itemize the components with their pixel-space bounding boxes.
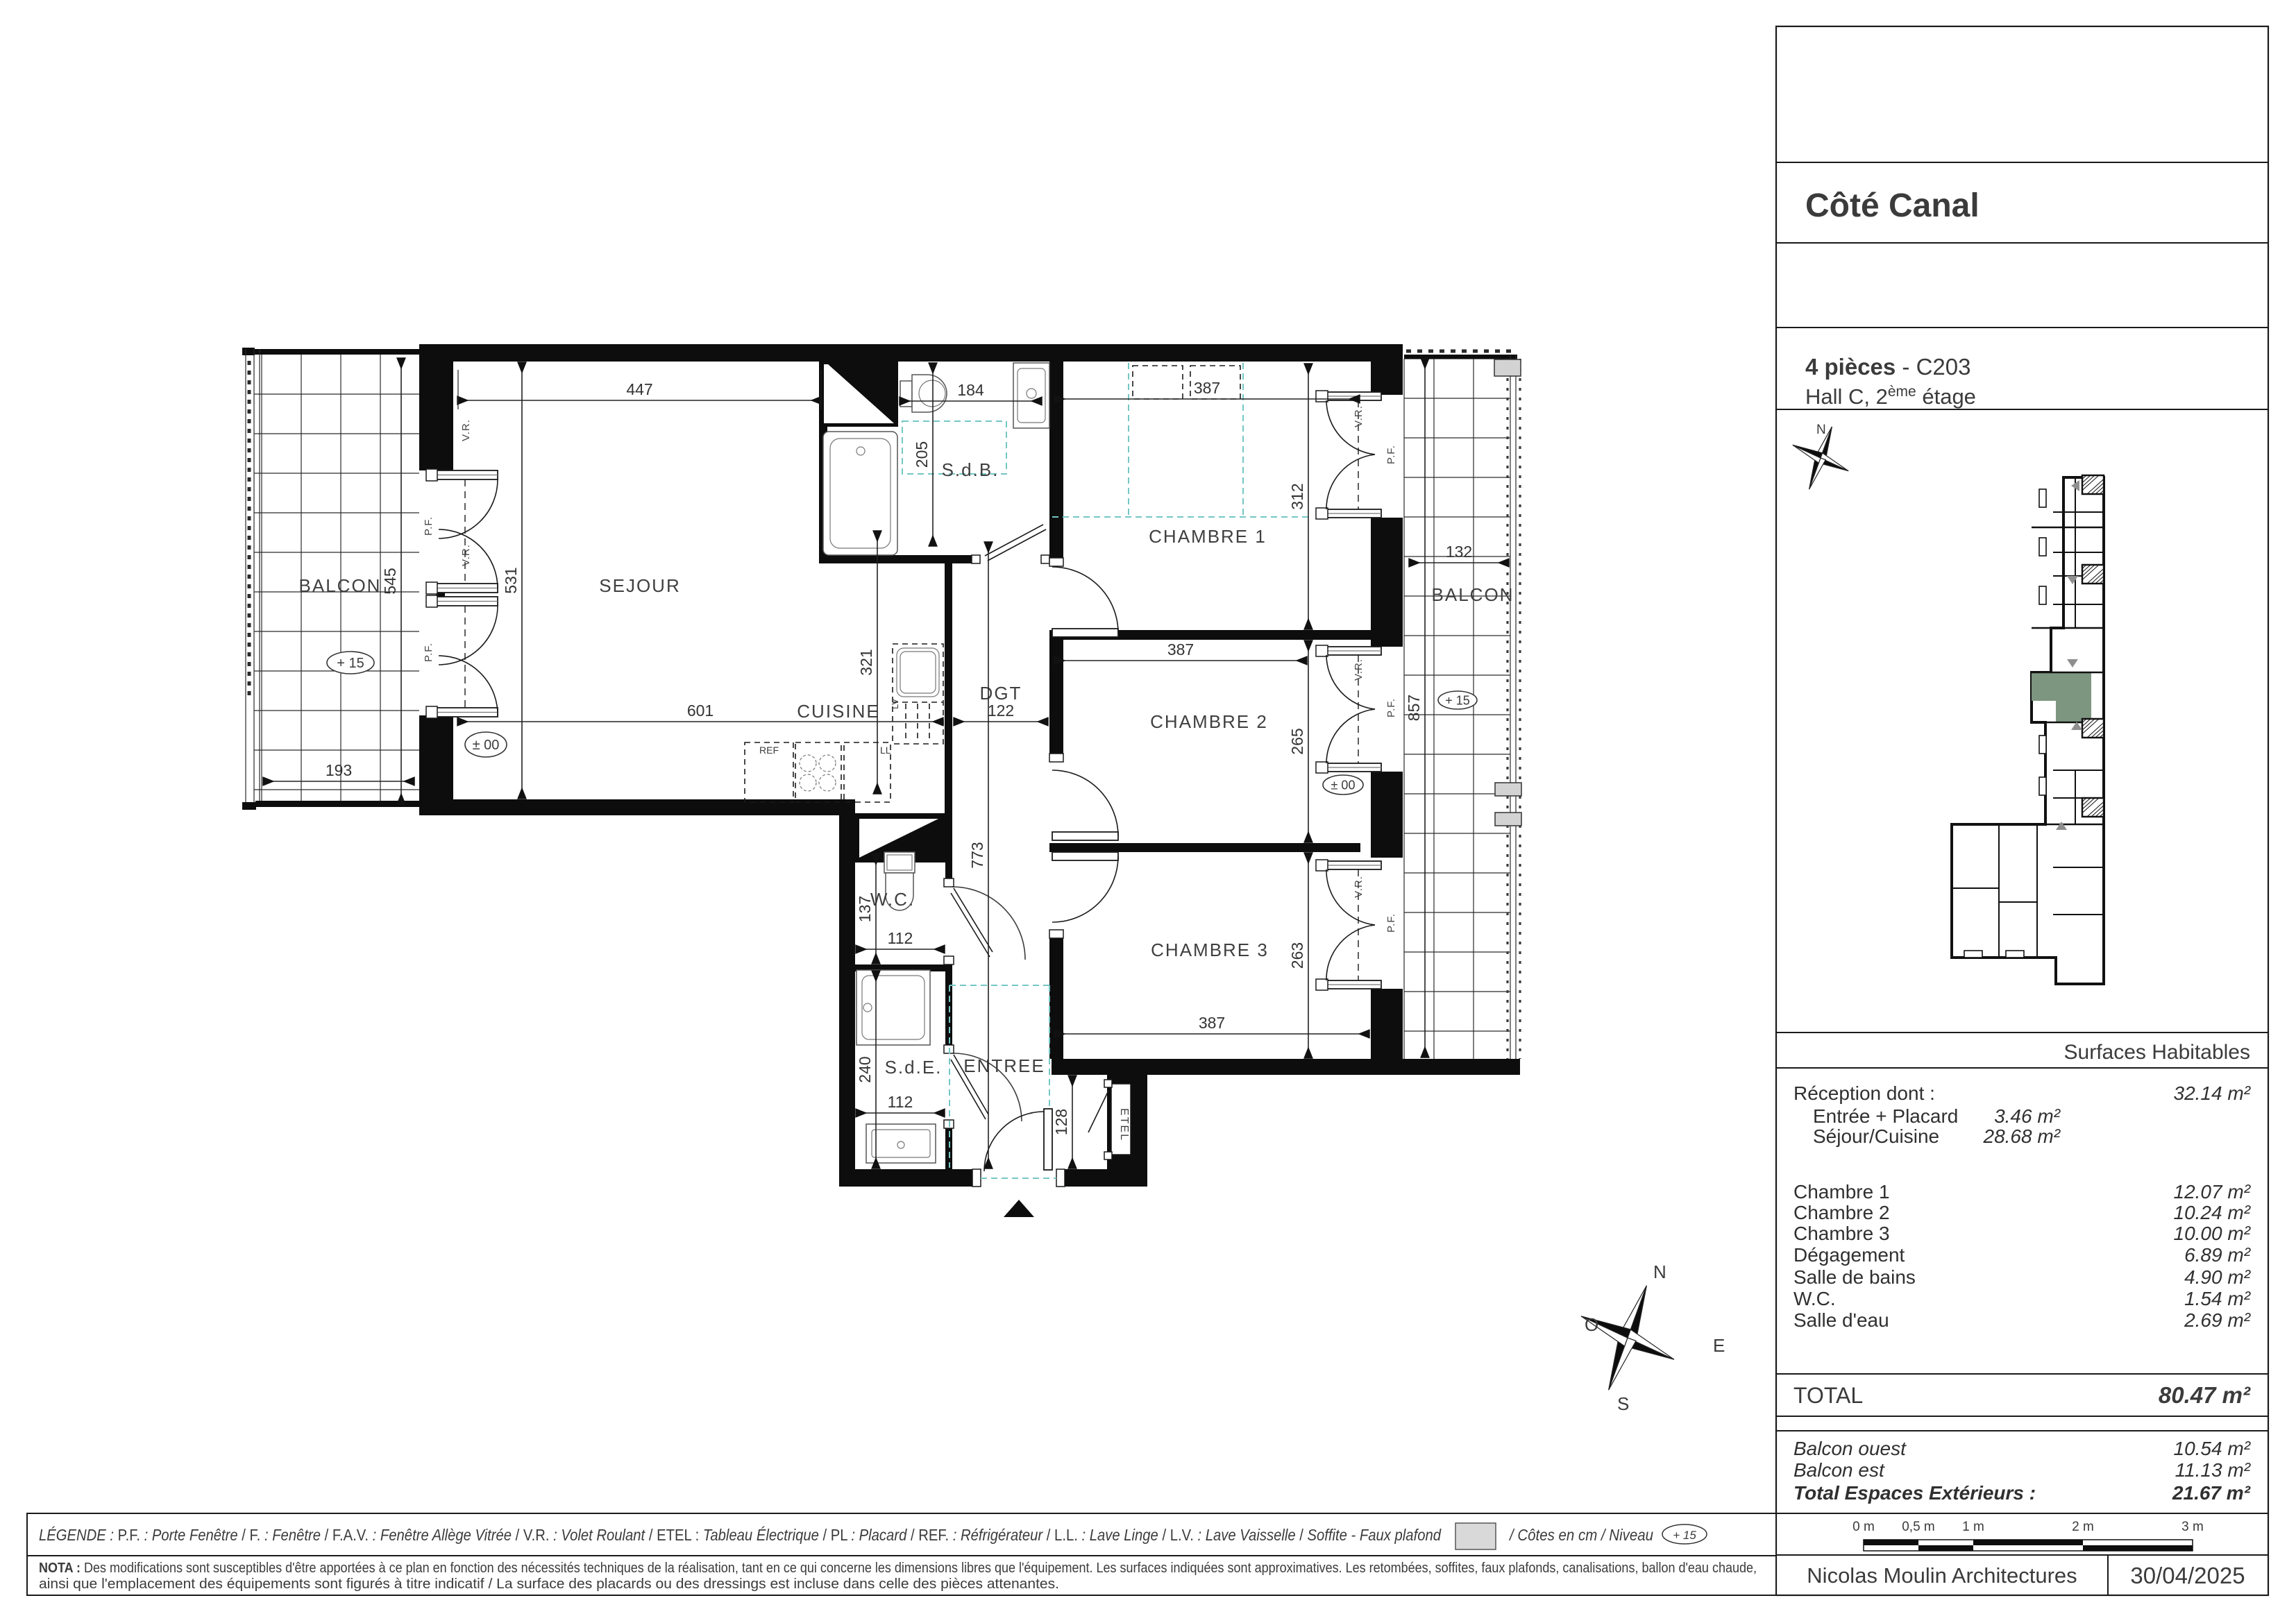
svg-text:CHAMBRE 3: CHAMBRE 3 [1151, 940, 1269, 960]
svg-text:NOTA : Des modifications sont: NOTA : Des modifications sont susceptibl… [39, 1560, 1757, 1576]
svg-text:N: N [1653, 1261, 1666, 1282]
svg-text:128: 128 [1052, 1109, 1070, 1135]
svg-text:184: 184 [957, 381, 984, 399]
svg-text:Réception dont :: Réception dont : [1793, 1082, 1935, 1104]
svg-text:132: 132 [1446, 543, 1472, 561]
svg-text:312: 312 [1288, 483, 1306, 509]
svg-text:Séjour/Cuisine: Séjour/Cuisine [1813, 1125, 1939, 1147]
svg-text:± 00: ± 00 [1331, 778, 1356, 792]
svg-text:1.54 m²: 1.54 m² [2184, 1288, 2252, 1309]
svg-text:Chambre 2: Chambre 2 [1793, 1202, 1890, 1223]
svg-text:531: 531 [502, 567, 520, 593]
svg-text:193: 193 [326, 761, 352, 779]
svg-text:447: 447 [626, 380, 652, 398]
svg-text:Balcon ouest: Balcon ouest [1793, 1438, 1907, 1459]
svg-text:Total Espaces Extérieurs :: Total Espaces Extérieurs : [1793, 1482, 2036, 1504]
svg-text:BALCON: BALCON [299, 575, 382, 596]
svg-text:32.14 m²: 32.14 m² [2174, 1082, 2252, 1104]
svg-text:W.C.: W.C. [1793, 1288, 1836, 1309]
svg-text:CHAMBRE 2: CHAMBRE 2 [1150, 711, 1268, 732]
svg-text:Salle de bains: Salle de bains [1793, 1266, 1916, 1288]
svg-text:ETEL: ETEL [1118, 1108, 1130, 1141]
svg-text:REF: REF [759, 745, 779, 756]
svg-text:SEJOUR: SEJOUR [599, 575, 680, 596]
svg-text:0,5 m: 0,5 m [1902, 1520, 1935, 1534]
svg-text:V.R.: V.R. [1353, 405, 1365, 427]
svg-text:CHAMBRE 1: CHAMBRE 1 [1149, 526, 1267, 547]
svg-text:112: 112 [888, 1093, 913, 1111]
svg-text:387: 387 [1199, 1014, 1225, 1032]
svg-text:Dégagement: Dégagement [1793, 1244, 1905, 1266]
svg-text:ainsi que l'emplacement des éq: ainsi que l'emplacement des équipements … [39, 1576, 1059, 1592]
svg-text:DGT: DGT [980, 683, 1022, 704]
svg-text:2 m: 2 m [2072, 1520, 2094, 1534]
svg-text:P.F.: P.F. [1385, 698, 1397, 717]
svg-text:10.24 m²: 10.24 m² [2174, 1202, 2252, 1223]
svg-text:28.68 m²: 28.68 m² [1983, 1125, 2061, 1147]
svg-text:1 m: 1 m [1962, 1520, 1984, 1534]
svg-text:4.90 m²: 4.90 m² [2184, 1266, 2252, 1288]
svg-text:240: 240 [856, 1056, 874, 1082]
svg-text:0 m: 0 m [1852, 1520, 1875, 1534]
svg-text:ENTREE: ENTREE [963, 1055, 1045, 1076]
svg-text:P.F.: P.F. [423, 643, 434, 662]
svg-text:Surfaces Habitables: Surfaces Habitables [2064, 1041, 2250, 1064]
svg-text:+ 15: + 15 [1673, 1529, 1696, 1542]
svg-text:V.R.: V.R. [1353, 876, 1365, 898]
svg-text:122: 122 [988, 702, 1014, 720]
svg-text:265: 265 [1288, 728, 1306, 754]
svg-text:30/04/2025: 30/04/2025 [2130, 1563, 2245, 1588]
svg-text:545: 545 [381, 568, 399, 594]
svg-text:773: 773 [968, 842, 986, 868]
svg-text:857: 857 [1405, 695, 1423, 721]
svg-text:601: 601 [687, 702, 714, 720]
svg-text:2.69 m²: 2.69 m² [2184, 1309, 2252, 1331]
svg-text:± 00: ± 00 [473, 738, 500, 753]
svg-text:P.F.: P.F. [423, 516, 434, 536]
svg-text:10.00 m²: 10.00 m² [2174, 1223, 2252, 1244]
svg-text:+ 15: + 15 [1445, 693, 1470, 707]
svg-text:80.47 m²: 80.47 m² [2159, 1382, 2251, 1408]
svg-text:Salle d'eau: Salle d'eau [1793, 1309, 1889, 1331]
svg-text:BALCON: BALCON [1432, 584, 1514, 605]
svg-text:3 m: 3 m [2181, 1520, 2204, 1534]
svg-text:E: E [1713, 1335, 1725, 1356]
svg-text:V.R.: V.R. [1353, 658, 1365, 681]
svg-text:387: 387 [1167, 640, 1194, 658]
svg-text:S.d.E.: S.d.E. [885, 1057, 943, 1078]
svg-text:12.07 m²: 12.07 m² [2174, 1181, 2252, 1203]
svg-text:Chambre 3: Chambre 3 [1793, 1223, 1890, 1244]
svg-text:O: O [1585, 1314, 1598, 1335]
svg-text:LL: LL [880, 745, 891, 756]
svg-text:LV: LV [890, 699, 900, 709]
svg-text:4 pièces - C203: 4 pièces - C203 [1805, 354, 1970, 380]
svg-text:W.C.: W.C. [870, 889, 915, 910]
svg-text:3.46 m²: 3.46 m² [1994, 1105, 2061, 1127]
svg-text:Balcon est: Balcon est [1793, 1459, 1885, 1481]
svg-text:321: 321 [857, 649, 875, 675]
svg-text:V.R.: V.R. [460, 419, 472, 441]
svg-text:137: 137 [856, 896, 874, 922]
svg-text:N: N [1816, 423, 1826, 437]
svg-text:V.R.: V.R. [460, 544, 472, 566]
svg-text:6.89 m²: 6.89 m² [2184, 1244, 2252, 1266]
svg-text:10.54 m²: 10.54 m² [2174, 1438, 2252, 1459]
svg-text:11.13 m²: 11.13 m² [2175, 1459, 2252, 1481]
svg-text:Côté Canal: Côté Canal [1805, 187, 1980, 224]
svg-text:Entrée + Placard: Entrée + Placard [1813, 1105, 1958, 1127]
svg-text:S: S [1617, 1393, 1629, 1414]
svg-text:P.F.: P.F. [1385, 445, 1397, 464]
svg-text:LÉGENDE : P.F. : Porte Fenêtr: LÉGENDE : P.F. : Porte Fenêtre / F. : Fe… [39, 1526, 1442, 1544]
svg-text:Chambre 1: Chambre 1 [1793, 1181, 1890, 1203]
svg-text:P.F.: P.F. [1385, 913, 1397, 933]
svg-text:112: 112 [888, 929, 913, 947]
svg-text:Nicolas Moulin Architectures: Nicolas Moulin Architectures [1807, 1563, 2077, 1588]
svg-text:21.67 m²: 21.67 m² [2172, 1482, 2251, 1504]
svg-text:S.d.B.: S.d.B. [942, 459, 999, 480]
svg-text:387: 387 [1194, 379, 1220, 397]
svg-text:+ 15: + 15 [337, 656, 364, 671]
svg-text:263: 263 [1288, 942, 1306, 969]
svg-text:/ Côtes en cm / Niveau: / Côtes en cm / Niveau [1508, 1526, 1653, 1544]
svg-text:TOTAL: TOTAL [1793, 1383, 1863, 1408]
svg-text:205: 205 [913, 441, 931, 468]
svg-text:CUISINE: CUISINE [797, 701, 879, 722]
